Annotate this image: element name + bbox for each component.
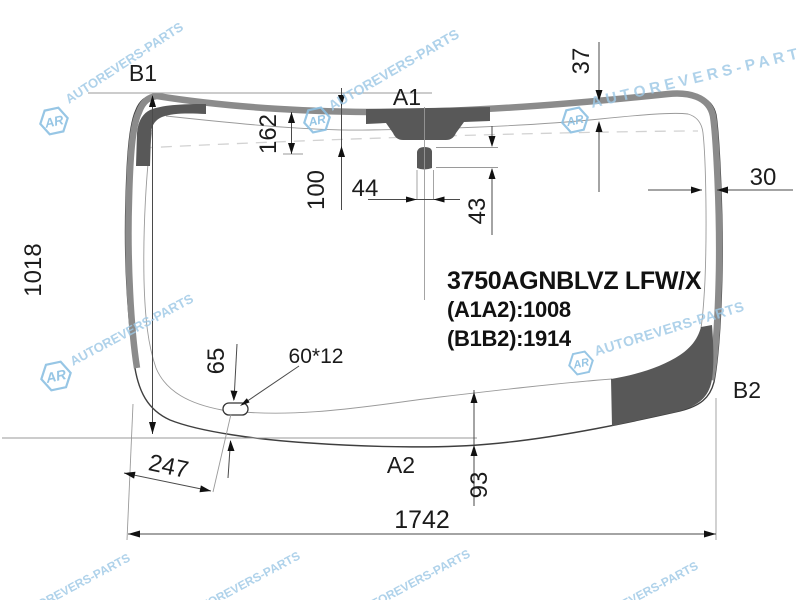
- dim-band-top-label: 37: [568, 48, 595, 75]
- watermark-text: AUTOREVERS-PARTS: [354, 547, 473, 600]
- dim-sensor-offset-top-label: 162: [255, 114, 282, 154]
- dim-band-side-label: 30: [750, 164, 777, 191]
- watermark-logo: AR: [38, 106, 70, 135]
- dim-height-label: 1018: [20, 243, 47, 296]
- watermark-text: AUTOREVERS-PARTS: [184, 549, 303, 600]
- watermark-text: AUTOREVERS-PARTS: [14, 551, 133, 600]
- dim-sensor-offset-label: 100: [303, 170, 330, 210]
- label-a1: A1: [393, 84, 421, 110]
- dim-tab-width-label: 44: [352, 175, 379, 202]
- watermark-text: AUTOREVERS-PARTS: [582, 559, 701, 600]
- watermark-logo: AR: [39, 360, 74, 392]
- part-dim-a1a2: (A1A2):1008: [447, 297, 571, 322]
- dim-tab-height-label: 43: [464, 198, 491, 225]
- dim-band-bottom-label: 93: [466, 472, 493, 499]
- dim-slot-label: 60*12: [289, 345, 344, 368]
- part-code: 3750AGNBLVZ LFW/X: [447, 267, 702, 295]
- dim-slot-v-label: 65: [203, 348, 230, 375]
- dim-width-label: 1742: [394, 506, 450, 534]
- mounting-slot: [223, 403, 248, 415]
- watermark-logo-text: AR: [42, 112, 65, 131]
- label-a2: A2: [387, 452, 415, 478]
- watermark-logo-text: AR: [43, 366, 68, 386]
- windshield-diagram: 1018 1742 162 100 44 43: [0, 0, 800, 600]
- part-dim-b1b2: (B1B2):1914: [447, 326, 572, 351]
- label-b2: B2: [733, 377, 761, 403]
